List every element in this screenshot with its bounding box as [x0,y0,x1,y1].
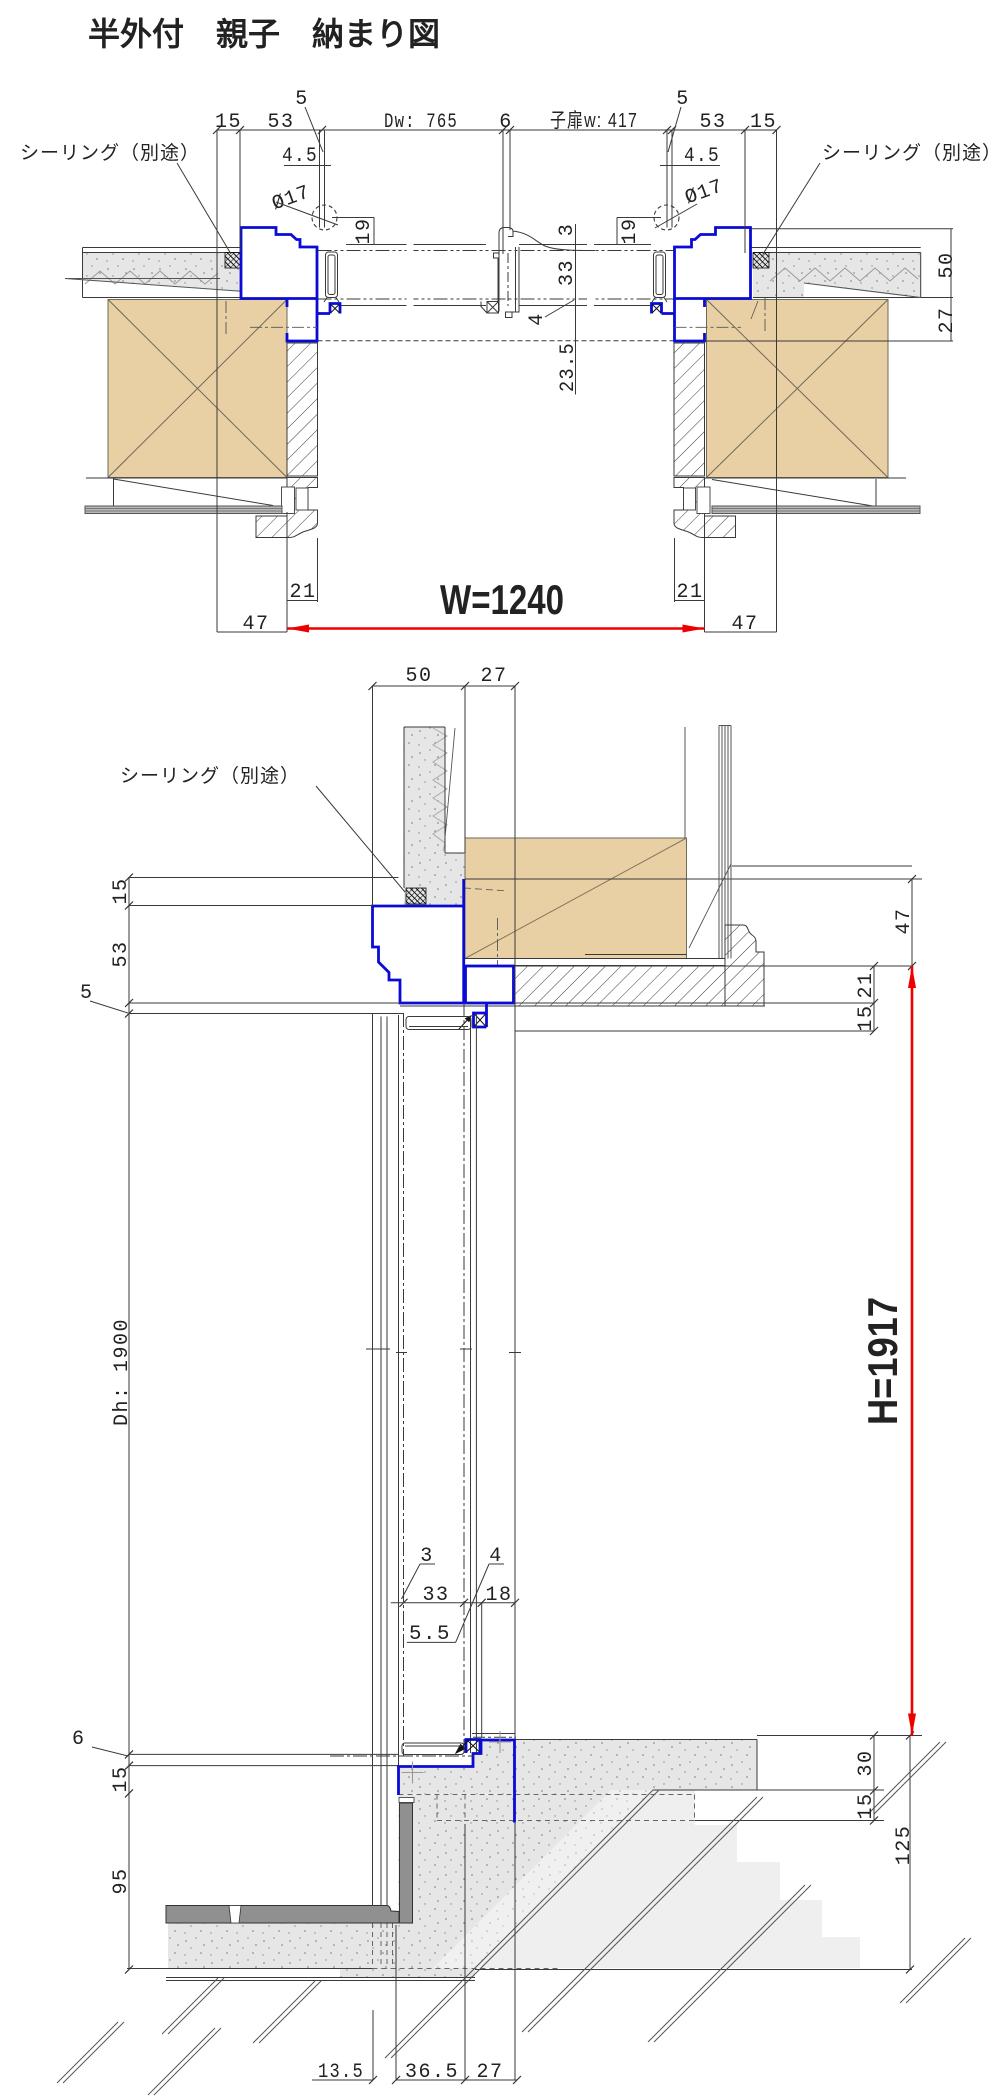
svg-text:27: 27 [480,665,507,688]
svg-text:4.5: 4.5 [282,145,318,168]
svg-text:53: 53 [699,111,726,134]
svg-text:5: 5 [80,982,94,1005]
svg-text:4: 4 [526,312,549,326]
svg-text:47: 47 [893,907,916,934]
svg-text:半外付 親子 納まり図: 半外付 親子 納まり図 [88,16,440,52]
svg-text:シーリング（別途）: シーリング（別途） [20,142,200,164]
svg-text:シーリング（別途）: シーリング（別途） [822,142,1000,164]
svg-text:53: 53 [110,940,133,967]
svg-text:W=1240: W=1240 [440,576,564,623]
svg-text:H=1917: H=1917 [859,1297,906,1425]
svg-text:3: 3 [556,223,579,237]
svg-text:13.5: 13.5 [318,2061,364,2084]
svg-text:4: 4 [489,1545,503,1568]
svg-text:15: 15 [855,1792,878,1819]
svg-text:19: 19 [619,217,642,244]
svg-text:15: 15 [215,111,242,134]
svg-text:30: 30 [855,1749,878,1776]
svg-text:5: 5 [676,88,690,111]
svg-text:シーリング（別途）: シーリング（別途） [120,765,300,787]
svg-text:21: 21 [855,971,878,998]
svg-text:53: 53 [267,111,294,134]
svg-text:23.5: 23.5 [557,342,580,392]
svg-text:95: 95 [110,1867,133,1894]
svg-text:5.5: 5.5 [409,1623,451,1646]
svg-text:15: 15 [110,877,133,904]
svg-text:50: 50 [936,251,959,278]
svg-text:5: 5 [295,88,309,111]
svg-text:4.5: 4.5 [684,145,720,168]
svg-text:Ø17: Ø17 [682,175,727,210]
svg-text:3: 3 [420,1545,434,1568]
svg-text:15: 15 [110,1765,133,1792]
svg-text:6: 6 [499,111,513,134]
svg-text:15: 15 [855,1004,878,1031]
svg-text:27: 27 [476,2061,503,2084]
svg-text:33: 33 [422,1584,449,1607]
svg-text:47: 47 [242,613,269,636]
svg-text:33: 33 [556,259,579,286]
svg-text:50: 50 [405,665,432,688]
svg-text:Dh: 1900: Dh: 1900 [111,1318,134,1426]
svg-text:36.5: 36.5 [405,2061,459,2084]
svg-text:18: 18 [485,1584,512,1607]
svg-text:Dw: 765: Dw: 765 [384,111,458,134]
svg-text:15: 15 [750,111,777,134]
svg-text:19: 19 [353,217,376,244]
svg-text:125: 125 [893,1825,916,1866]
svg-text:Ø17: Ø17 [269,181,314,216]
svg-text:21: 21 [289,581,316,604]
svg-text:47: 47 [731,613,758,636]
svg-text:27: 27 [936,306,959,333]
svg-text:子扉w: 417: 子扉w: 417 [550,109,638,132]
svg-text:6: 6 [72,1728,86,1751]
svg-text:21: 21 [676,581,703,604]
